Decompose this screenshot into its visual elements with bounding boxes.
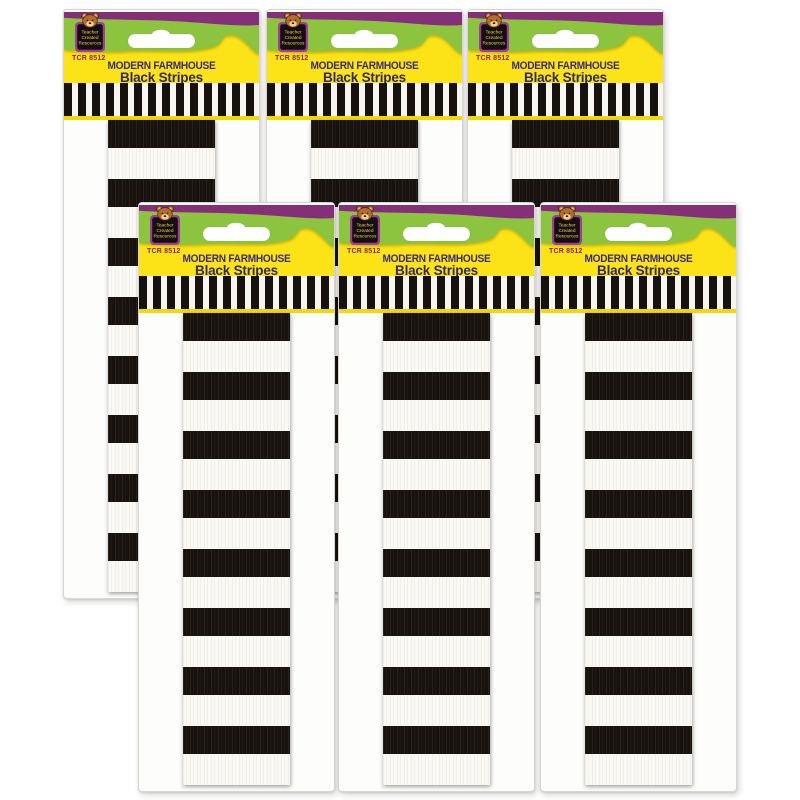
header-vertical-stripes	[339, 276, 534, 309]
header-vertical-stripes	[468, 83, 663, 116]
border-trim-strip	[183, 313, 290, 785]
border-trim-strip	[383, 313, 490, 785]
bear-icon	[82, 13, 99, 28]
border-trim-strip	[585, 313, 692, 785]
bear-icon	[357, 206, 374, 221]
badge-line1: Teacher	[81, 29, 98, 35]
badge-line1: Teacher	[156, 222, 173, 228]
yellow-divider-line	[267, 116, 462, 120]
badge-line2: Created	[356, 228, 373, 234]
yellow-divider-line	[64, 116, 259, 120]
header-vertical-stripes	[267, 83, 462, 116]
badge-line3: Resources	[282, 41, 306, 47]
badge-line3: Resources	[483, 41, 507, 47]
yellow-divider-line	[541, 309, 736, 313]
badge-line2: Created	[485, 35, 502, 41]
badge-line2: Created	[156, 228, 173, 234]
badge-line1: Teacher	[356, 222, 373, 228]
badge-line2: Created	[81, 35, 98, 41]
badge-line1: Teacher	[558, 222, 575, 228]
badge-line1: Teacher	[284, 29, 301, 35]
product-photo: Teacher Created Resources TCR 8512 MODER…	[0, 0, 800, 800]
badge-line3: Resources	[154, 234, 178, 240]
badge-line3: Resources	[354, 234, 378, 240]
badge-line2: Created	[284, 35, 301, 41]
badge-line1: Teacher	[485, 29, 502, 35]
yellow-divider-line	[468, 116, 663, 120]
header-vertical-stripes	[64, 83, 259, 116]
bear-icon	[559, 206, 576, 221]
bear-icon	[486, 13, 503, 28]
badge-line3: Resources	[556, 234, 580, 240]
bear-icon	[157, 206, 174, 221]
package-front-middle: Teacher Created Resources TCR 8512 MODER…	[338, 202, 535, 792]
bear-icon	[285, 13, 302, 28]
package-front-right: Teacher Created Resources TCR 8512 MODER…	[540, 202, 737, 792]
header-vertical-stripes	[139, 276, 334, 309]
yellow-divider-line	[339, 309, 534, 313]
yellow-divider-line	[139, 309, 334, 313]
package-front-left: Teacher Created Resources TCR 8512 MODER…	[138, 202, 335, 792]
header-vertical-stripes	[541, 276, 736, 309]
badge-line3: Resources	[79, 41, 103, 47]
badge-line2: Created	[558, 228, 575, 234]
